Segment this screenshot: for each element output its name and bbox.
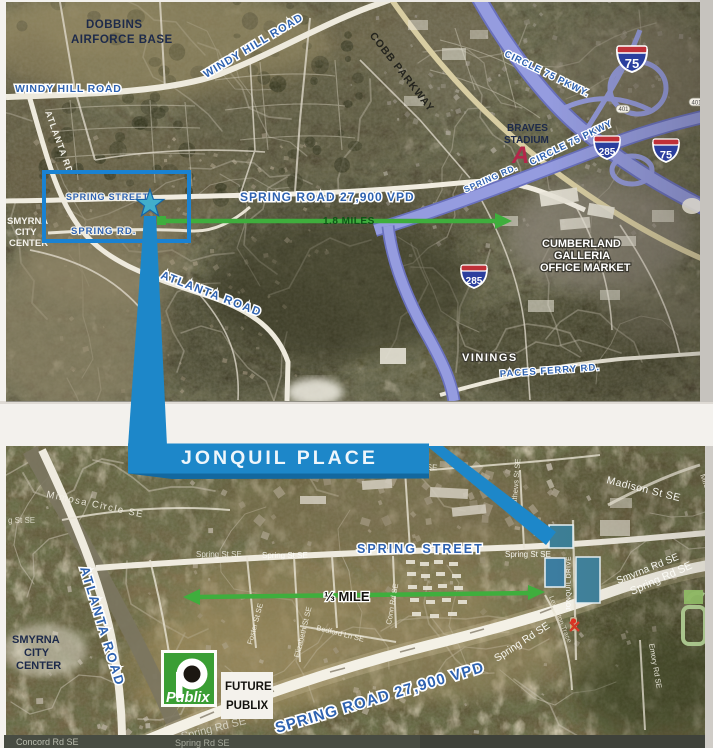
svg-text:Spring St SE: Spring St SE <box>505 550 551 559</box>
svg-text:285: 285 <box>466 276 483 287</box>
svg-text:JONQUIL PLACE: JONQUIL PLACE <box>181 447 378 469</box>
svg-text:Spring St SE: Spring St SE <box>196 550 242 559</box>
svg-text:CITY: CITY <box>15 227 37 238</box>
svg-text:285: 285 <box>599 147 616 158</box>
svg-text:Spring St SE: Spring St SE <box>262 551 308 560</box>
svg-text:401: 401 <box>619 107 630 113</box>
svg-text:FUTURE: FUTURE <box>225 681 272 693</box>
svg-text:VININGS: VININGS <box>462 352 518 364</box>
svg-text:CUMBERLAND: CUMBERLAND <box>542 238 621 250</box>
svg-text:AIRFORCE BASE: AIRFORCE BASE <box>71 34 173 46</box>
svg-text:OFFICE MARKET: OFFICE MARKET <box>540 262 631 274</box>
svg-text:⅓ MILE: ⅓ MILE <box>324 589 370 604</box>
svg-text:1.8 MILES: 1.8 MILES <box>323 216 375 227</box>
svg-text:Publix: Publix <box>166 690 210 706</box>
svg-text:SMYRNA: SMYRNA <box>12 634 60 646</box>
svg-text:Concord Rd SE: Concord Rd SE <box>16 737 79 747</box>
svg-text:JONQUIL DRIVE: JONQUIL DRIVE <box>566 556 573 611</box>
svg-text:75: 75 <box>660 150 672 162</box>
svg-text:CITY: CITY <box>24 647 50 659</box>
svg-text:SPRING STREET: SPRING STREET <box>66 192 149 202</box>
svg-text:SPRING ROAD 27,900 VPD: SPRING ROAD 27,900 VPD <box>240 190 415 204</box>
svg-text:WINDY HILL ROAD: WINDY HILL ROAD <box>15 83 122 95</box>
svg-text:CENTER: CENTER <box>16 660 61 672</box>
svg-text:PUBLIX: PUBLIX <box>226 700 269 712</box>
svg-text:Spring Rd SE: Spring Rd SE <box>175 738 230 748</box>
svg-text:SPRING STREET: SPRING STREET <box>357 542 484 556</box>
svg-text:BRAVES: BRAVES <box>507 123 548 134</box>
svg-text:SPRING RD.: SPRING RD. <box>71 226 136 237</box>
svg-text:DOBBINS: DOBBINS <box>86 19 143 31</box>
svg-text:GALLERIA: GALLERIA <box>554 250 610 262</box>
svg-text:75: 75 <box>625 56 639 71</box>
